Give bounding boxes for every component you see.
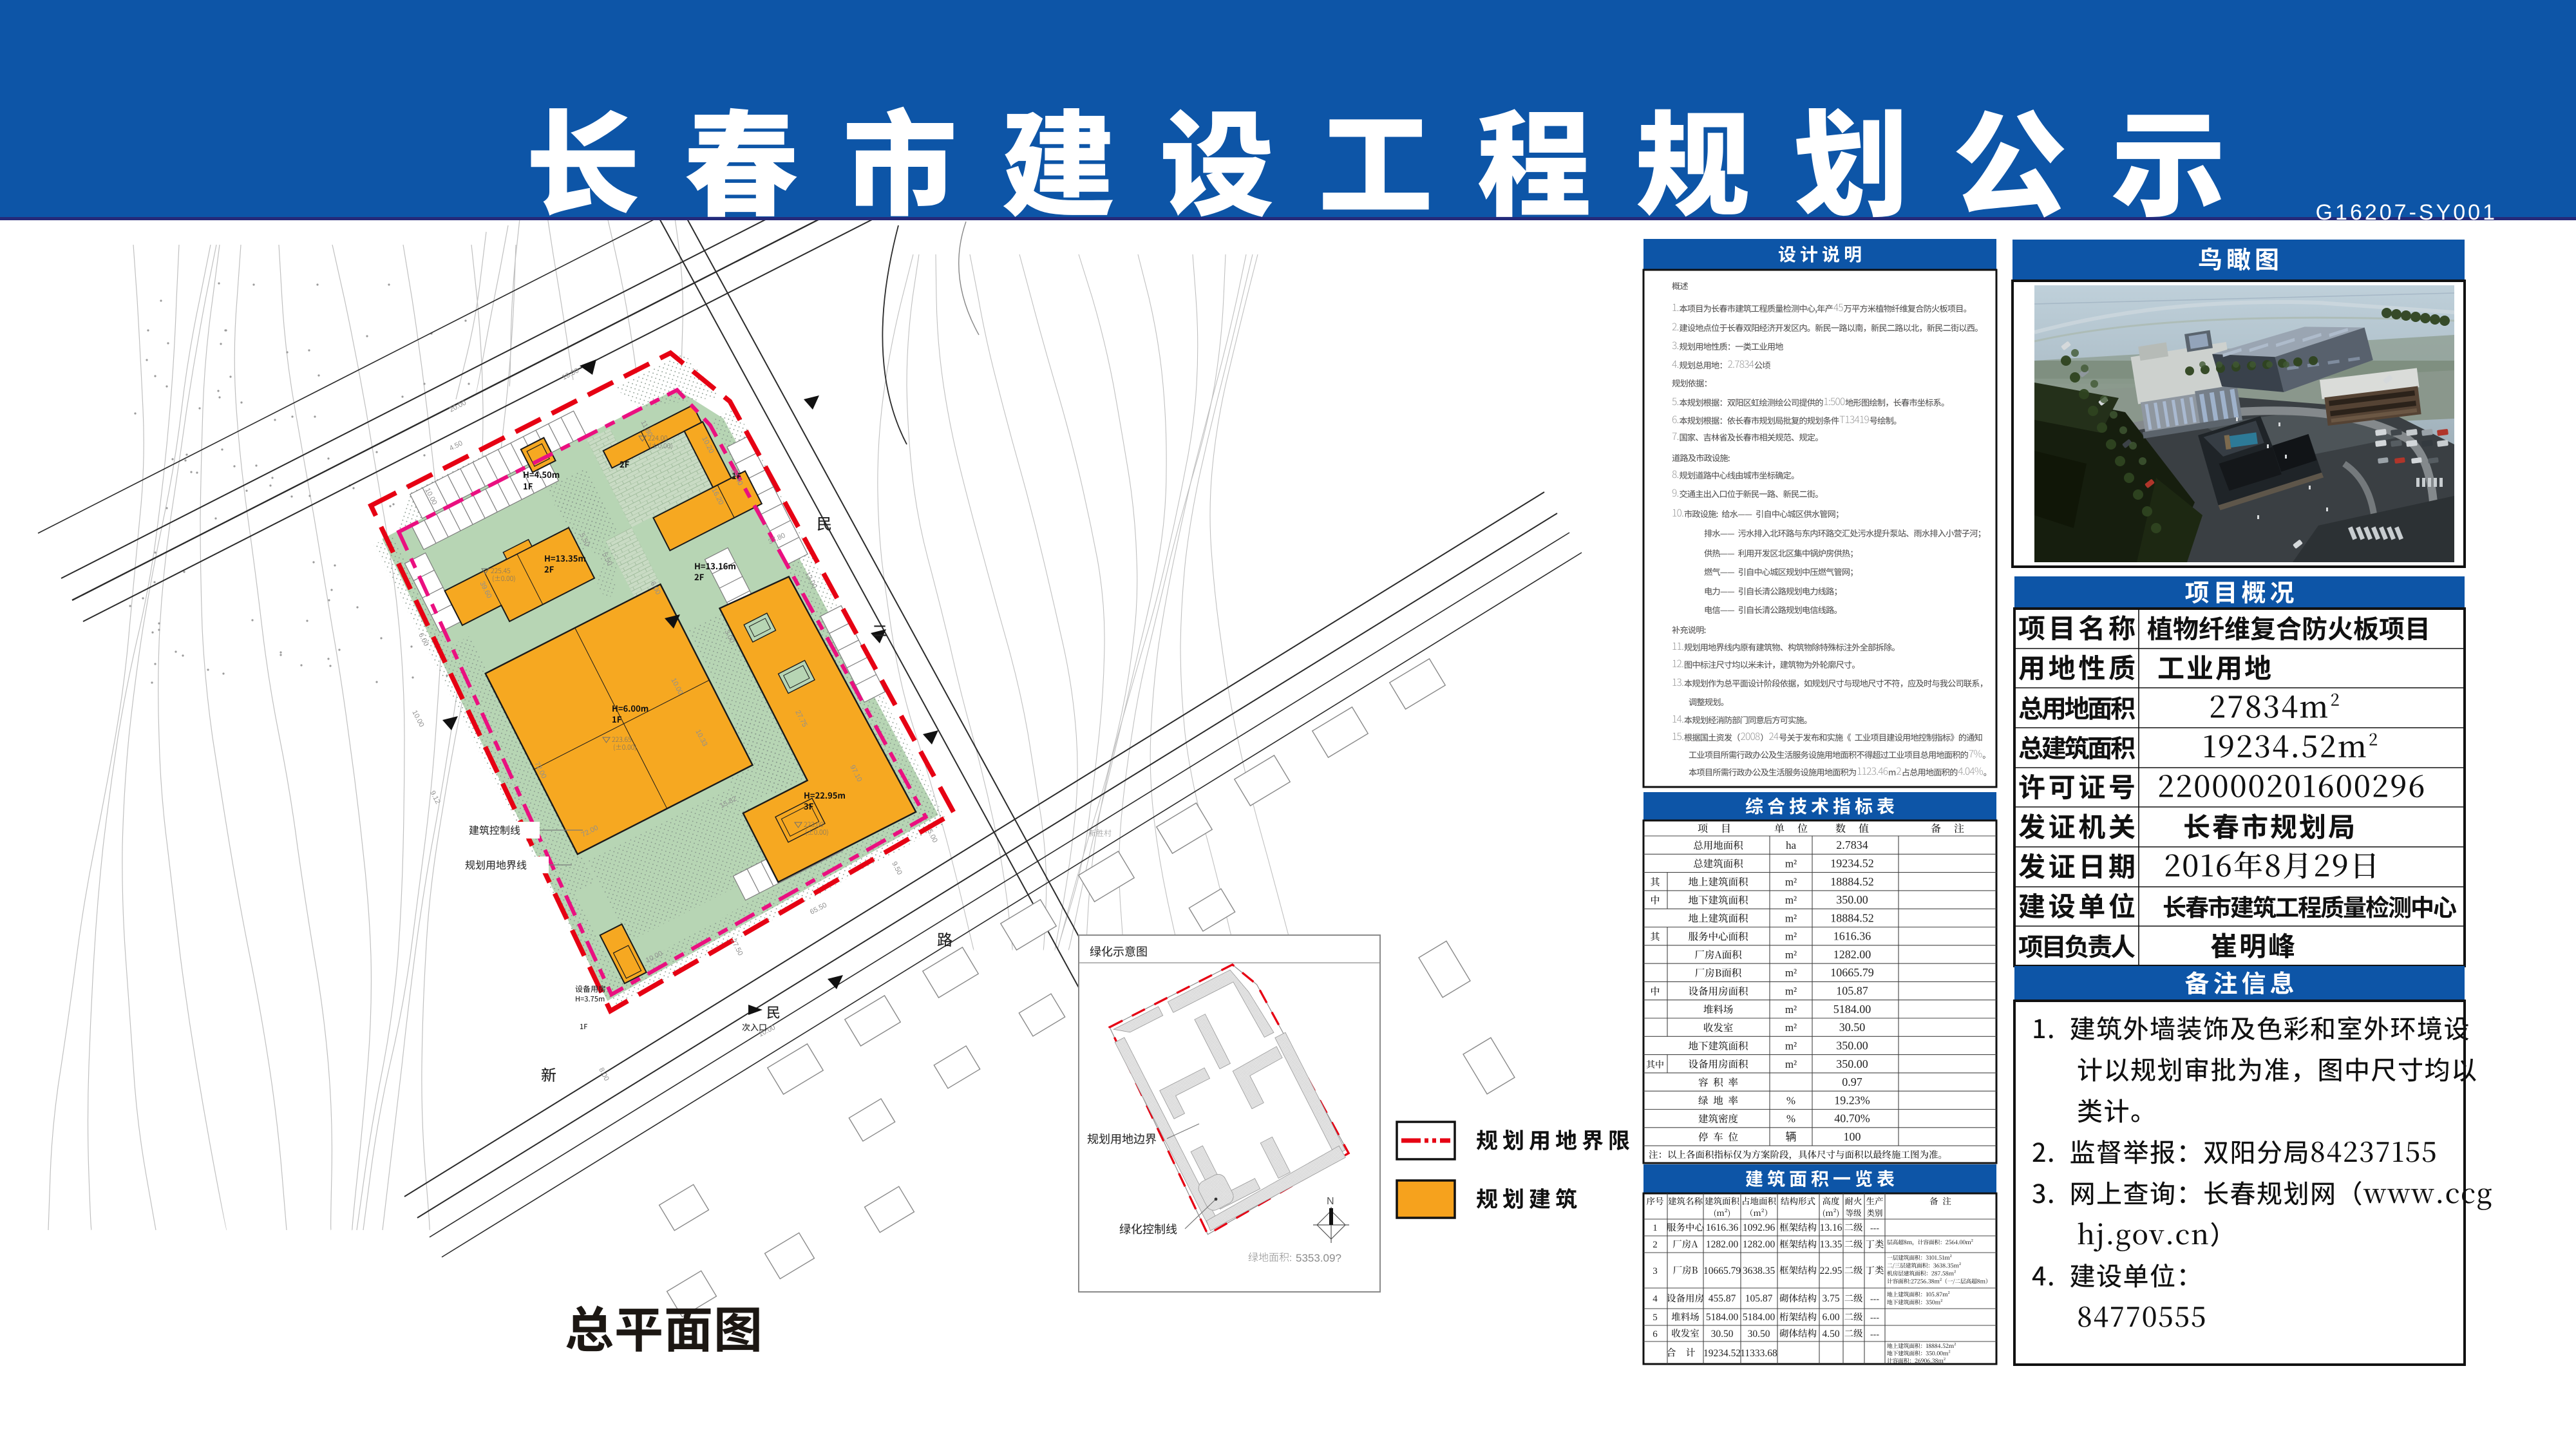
svg-text:13.16: 13.16: [1820, 1222, 1842, 1233]
svg-text:m²: m²: [1785, 967, 1797, 979]
svg-text:1092.96: 1092.96: [1743, 1222, 1776, 1233]
svg-text:1282.00: 1282.00: [1743, 1239, 1776, 1250]
svg-text:%: %: [1786, 1113, 1795, 1125]
svg-text:m²: m²: [1785, 876, 1797, 888]
svg-text:m²: m²: [1785, 1058, 1797, 1070]
svg-text:m²: m²: [1785, 912, 1797, 924]
svg-text:%: %: [1786, 1094, 1795, 1106]
svg-text:6: 6: [1653, 1329, 1658, 1340]
svg-text:350.00: 350.00: [1836, 893, 1868, 906]
svg-text:ha: ha: [1786, 839, 1797, 851]
svg-text:---: ---: [1870, 1330, 1879, 1340]
svg-text:30.50: 30.50: [1711, 1329, 1734, 1340]
svg-text:11333.68: 11333.68: [1740, 1348, 1777, 1359]
svg-text:3638.35: 3638.35: [1743, 1265, 1776, 1276]
svg-text:---: ---: [1870, 1313, 1879, 1323]
svg-text:10665.79: 10665.79: [1830, 966, 1874, 979]
svg-text:2: 2: [1653, 1240, 1658, 1250]
svg-text:5184.00: 5184.00: [1706, 1312, 1739, 1323]
svg-text:2.7834: 2.7834: [1836, 839, 1868, 851]
svg-text:6.00: 6.00: [1822, 1312, 1839, 1323]
svg-text:100: 100: [1844, 1130, 1861, 1143]
svg-text:1282.00: 1282.00: [1833, 948, 1871, 961]
svg-text:m²: m²: [1785, 858, 1797, 870]
svg-text:m²: m²: [1785, 931, 1797, 943]
svg-text:4.50: 4.50: [1822, 1329, 1839, 1340]
svg-text:18884.52: 18884.52: [1830, 875, 1874, 888]
svg-text:18884.52: 18884.52: [1830, 911, 1874, 924]
svg-text:1616.36: 1616.36: [1706, 1222, 1739, 1233]
svg-text:m²: m²: [1785, 949, 1797, 961]
svg-text:3.75: 3.75: [1822, 1293, 1839, 1304]
svg-text:22.95: 22.95: [1820, 1265, 1842, 1276]
svg-text:3: 3: [1653, 1266, 1658, 1276]
svg-text:105.87: 105.87: [1836, 985, 1868, 998]
svg-text:m²: m²: [1785, 1040, 1797, 1052]
svg-text:4: 4: [1653, 1294, 1658, 1304]
svg-text:19234.52: 19234.52: [1703, 1348, 1741, 1359]
svg-text:13.35: 13.35: [1820, 1239, 1842, 1250]
svg-text:---: ---: [1870, 1224, 1879, 1233]
svg-text:5: 5: [1653, 1313, 1658, 1323]
svg-text:N: N: [1327, 1196, 1334, 1207]
svg-text:350.00: 350.00: [1836, 1057, 1868, 1070]
svg-text:19234.52: 19234.52: [1830, 857, 1874, 870]
svg-text:19.23%: 19.23%: [1834, 1094, 1870, 1106]
svg-text:5353.09?: 5353.09?: [1296, 1252, 1341, 1264]
svg-text:G16207-SY001: G16207-SY001: [2316, 200, 2497, 225]
svg-text:辆: 辆: [1786, 1131, 1797, 1143]
svg-text:m²: m²: [1785, 1021, 1797, 1034]
svg-text:40.70%: 40.70%: [1834, 1112, 1870, 1125]
svg-text:m²: m²: [1785, 894, 1797, 906]
svg-text:455.87: 455.87: [1709, 1293, 1736, 1304]
svg-text:5184.00: 5184.00: [1833, 1003, 1871, 1016]
svg-text:30.50: 30.50: [1839, 1021, 1866, 1034]
svg-text:105.87: 105.87: [1745, 1293, 1773, 1304]
svg-text:1282.00: 1282.00: [1706, 1239, 1739, 1250]
svg-text:m²: m²: [1785, 1003, 1797, 1016]
svg-text:m²: m²: [1785, 985, 1797, 998]
svg-text:350.00: 350.00: [1836, 1039, 1868, 1052]
svg-text:---: ---: [1870, 1294, 1879, 1304]
svg-text:0.97: 0.97: [1842, 1076, 1862, 1088]
svg-text:5184.00: 5184.00: [1743, 1312, 1776, 1323]
svg-text:1: 1: [1653, 1223, 1658, 1233]
svg-text:10665.79: 10665.79: [1703, 1265, 1741, 1276]
svg-text:1616.36: 1616.36: [1833, 930, 1871, 943]
svg-text:30.50: 30.50: [1748, 1329, 1770, 1340]
